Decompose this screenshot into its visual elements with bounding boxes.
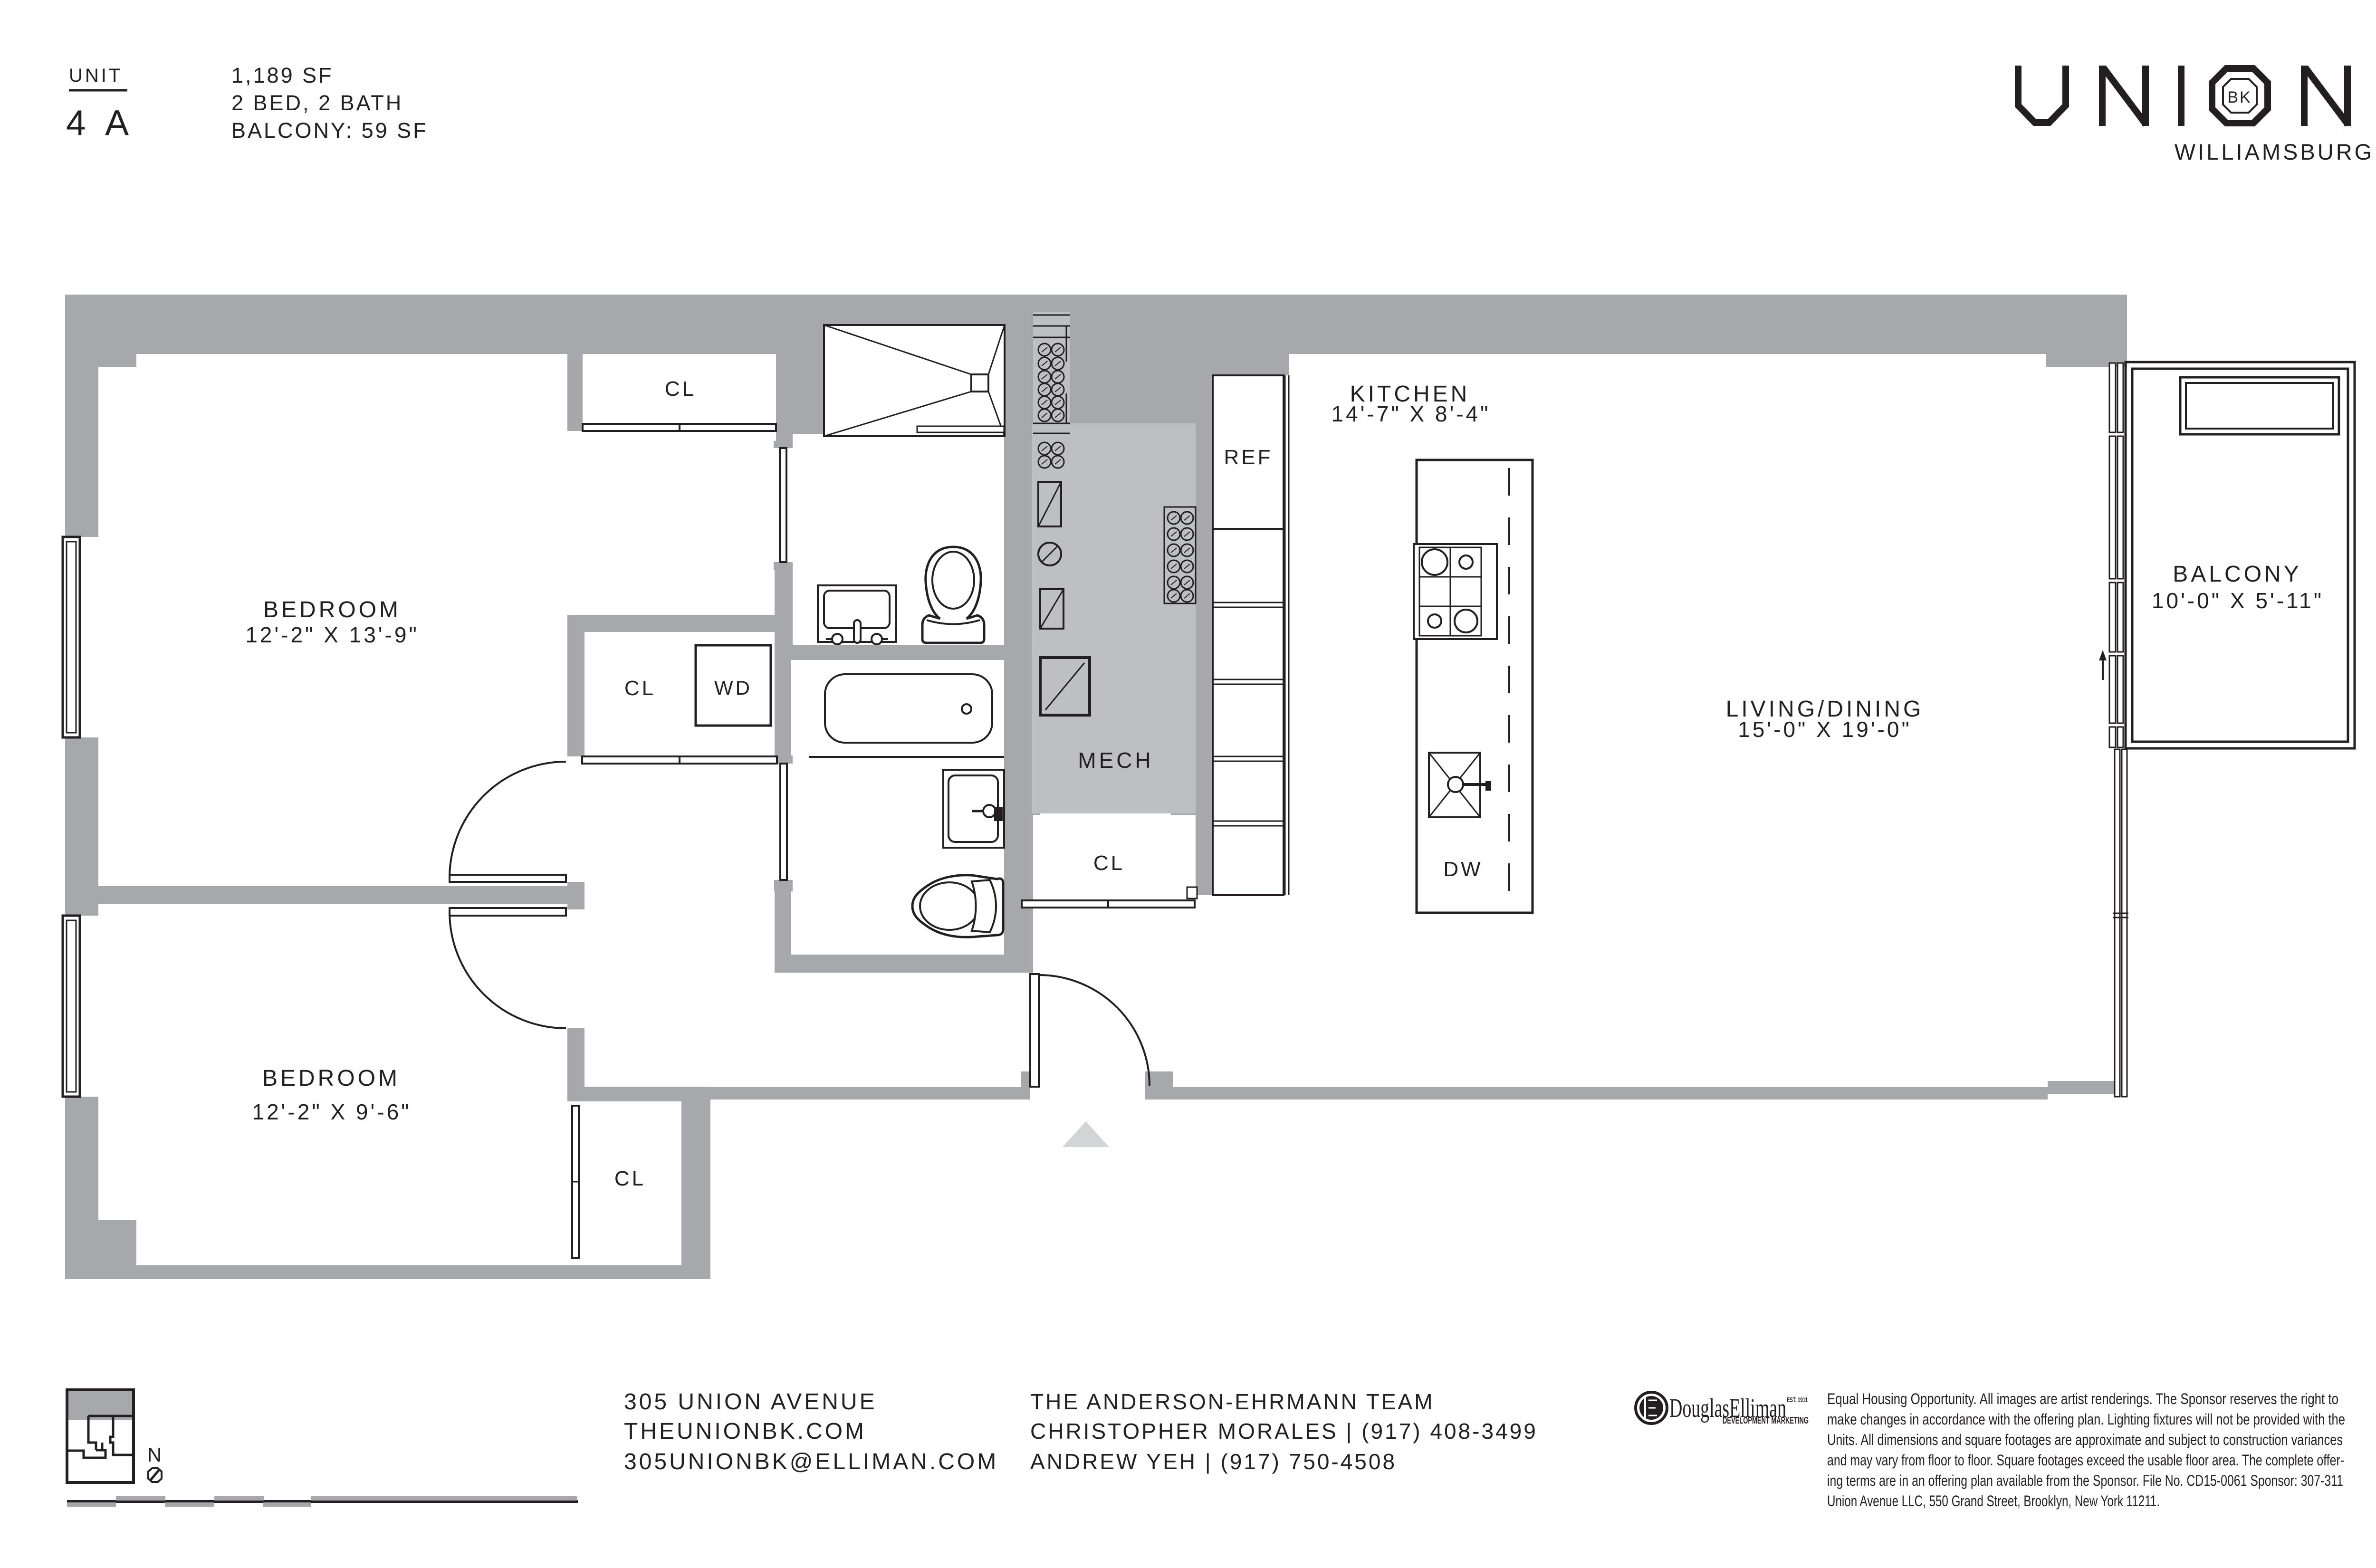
- svg-text:ANDREW YEH | (917) 750-4508: ANDREW YEH | (917) 750-4508: [1030, 1449, 1397, 1474]
- svg-text:THEUNIONBK.COM: THEUNIONBK.COM: [624, 1419, 866, 1444]
- svg-text:305UNIONBK@ELLIMAN.COM: 305UNIONBK@ELLIMAN.COM: [624, 1449, 998, 1474]
- svg-text:and may vary from floor to flo: and may vary from floor to floor. Square…: [1827, 1452, 2344, 1469]
- svg-text:WILLIAMSBURG: WILLIAMSBURG: [2175, 139, 2374, 164]
- svg-text:make changes in accordance wit: make changes in accordance with the offe…: [1827, 1411, 2345, 1428]
- svg-text:CL: CL: [624, 677, 656, 700]
- svg-text:BEDROOM: BEDROOM: [263, 597, 401, 622]
- svg-text:12'-2" X 9'-6": 12'-2" X 9'-6": [252, 1100, 411, 1124]
- svg-text:DEVELOPMENT MARKETING: DEVELOPMENT MARKETING: [1723, 1415, 1809, 1426]
- svg-text:Equal Housing Opportunity. All: Equal Housing Opportunity. All images ar…: [1827, 1390, 2338, 1407]
- svg-text:CL: CL: [1093, 851, 1125, 875]
- svg-text:CL: CL: [614, 1167, 646, 1190]
- svg-text:CHRISTOPHER MORALES | (917) 40: CHRISTOPHER MORALES | (917) 408-3499: [1030, 1419, 1538, 1444]
- svg-text:ing terms are in an offering p: ing terms are in an offering plan availa…: [1827, 1472, 2343, 1489]
- svg-text:THE ANDERSON-EHRMANN TEAM: THE ANDERSON-EHRMANN TEAM: [1030, 1389, 1435, 1414]
- svg-text:BEDROOM: BEDROOM: [262, 1066, 400, 1091]
- svg-text:WD: WD: [714, 677, 752, 699]
- svg-text:EST. 1911: EST. 1911: [1787, 1396, 1808, 1404]
- svg-text:10'-0" X 5'-11": 10'-0" X 5'-11": [2152, 588, 2324, 613]
- svg-text:BALCONY: BALCONY: [2173, 562, 2301, 587]
- svg-text:DW: DW: [1443, 858, 1483, 881]
- svg-text:14'-7" X 8'-4": 14'-7" X 8'-4": [1331, 402, 1490, 426]
- svg-text:Units. All dimensions and squa: Units. All dimensions and square footage…: [1827, 1431, 2343, 1448]
- svg-text:15'-0" X 19'-0": 15'-0" X 19'-0": [1738, 717, 1912, 742]
- svg-text:MECH: MECH: [1078, 748, 1153, 773]
- svg-text:12'-2" X 13'-9": 12'-2" X 13'-9": [245, 622, 419, 647]
- svg-text:BK: BK: [2227, 88, 2251, 106]
- svg-text:UNIT: UNIT: [69, 65, 123, 86]
- svg-text:4A: 4A: [66, 103, 129, 143]
- svg-text:2 BED, 2 BATH: 2 BED, 2 BATH: [231, 91, 403, 115]
- svg-text:BALCONY: 59 SF: BALCONY: 59 SF: [231, 118, 428, 143]
- svg-text:305 UNION AVENUE: 305 UNION AVENUE: [624, 1389, 877, 1415]
- svg-text:1,189 SF: 1,189 SF: [231, 63, 334, 87]
- svg-text:CL: CL: [665, 377, 696, 401]
- svg-text:N: N: [147, 1444, 162, 1466]
- svg-text:REF: REF: [1224, 446, 1273, 469]
- svg-text:Union Avenue LLC, 550 Grand St: Union Avenue LLC, 550 Grand Street, Broo…: [1827, 1492, 2160, 1510]
